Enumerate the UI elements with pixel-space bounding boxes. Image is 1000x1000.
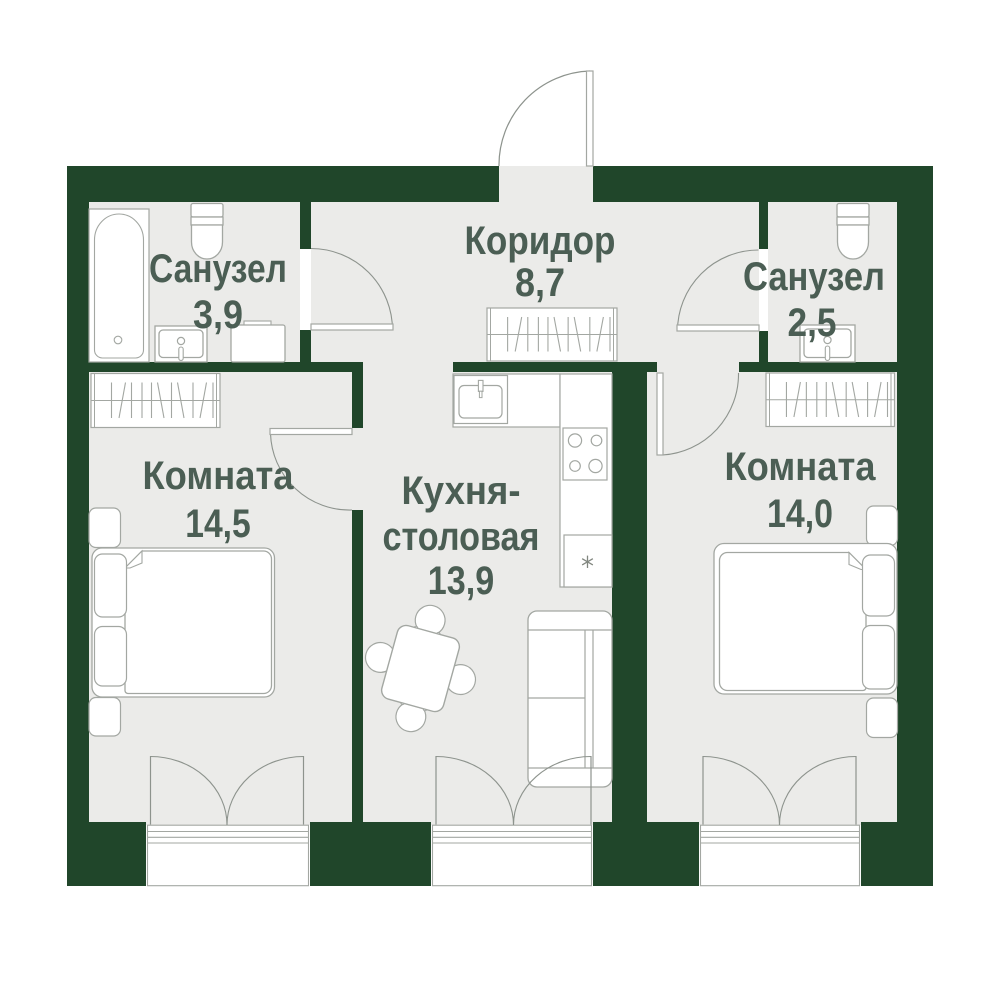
svg-text:столовая: столовая (383, 515, 540, 559)
svg-text:Комната: Комната (143, 454, 295, 498)
svg-text:Коридор: Коридор (465, 219, 616, 263)
svg-text:2,5: 2,5 (788, 301, 837, 345)
svg-text:Кухня-: Кухня- (402, 469, 521, 513)
svg-text:Санузел: Санузел (743, 255, 885, 299)
svg-text:14,5: 14,5 (185, 502, 251, 546)
svg-text:14,0: 14,0 (767, 492, 833, 536)
svg-text:Санузел: Санузел (149, 247, 287, 291)
svg-text:8,7: 8,7 (515, 261, 565, 305)
svg-text:13,9: 13,9 (428, 559, 495, 603)
svg-text:3,9: 3,9 (193, 293, 243, 337)
svg-text:Комната: Комната (725, 445, 877, 489)
